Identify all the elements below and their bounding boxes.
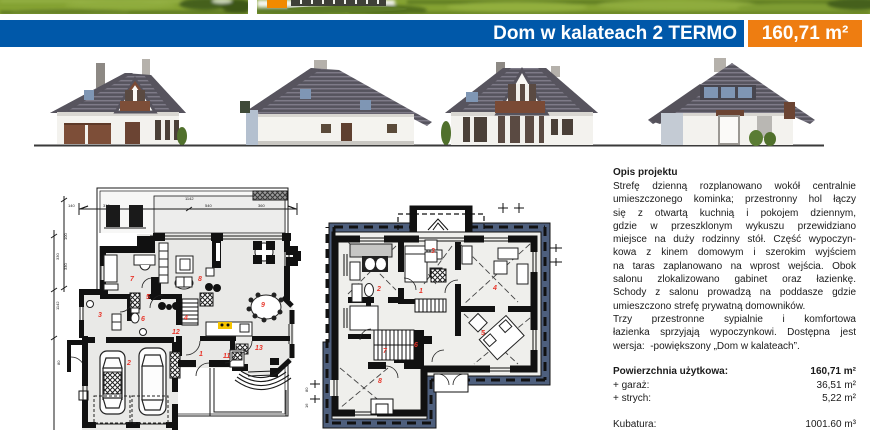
svg-text:1: 1 — [199, 351, 203, 358]
svg-text:13: 13 — [255, 345, 263, 352]
svg-text:5: 5 — [146, 294, 150, 301]
svg-text:11: 11 — [223, 353, 230, 360]
svg-text:100: 100 — [63, 233, 68, 240]
svg-text:6: 6 — [414, 342, 418, 349]
svg-text:9: 9 — [261, 302, 265, 309]
svg-text:12: 12 — [172, 329, 180, 336]
svg-text:140: 140 — [68, 203, 75, 208]
svg-text:2: 2 — [126, 360, 131, 367]
svg-text:8: 8 — [378, 378, 382, 385]
svg-text:2: 2 — [376, 286, 381, 293]
svg-text:360: 360 — [258, 203, 265, 208]
svg-text:5: 5 — [481, 330, 485, 337]
svg-text:1142: 1142 — [185, 196, 194, 201]
svg-text:6: 6 — [141, 316, 145, 323]
svg-text:3: 3 — [431, 248, 435, 255]
svg-text:8: 8 — [198, 276, 202, 283]
svg-text:80: 80 — [56, 360, 61, 365]
svg-text:330: 330 — [55, 253, 60, 260]
svg-text:4: 4 — [492, 285, 497, 292]
svg-text:330: 330 — [63, 263, 68, 270]
svg-text:80: 80 — [305, 387, 309, 392]
svg-text:3: 3 — [98, 312, 102, 319]
svg-text:16: 16 — [305, 403, 309, 408]
svg-text:1: 1 — [419, 288, 423, 295]
svg-text:540: 540 — [205, 203, 212, 208]
svg-text:4: 4 — [183, 315, 188, 322]
svg-text:1142: 1142 — [55, 301, 60, 310]
